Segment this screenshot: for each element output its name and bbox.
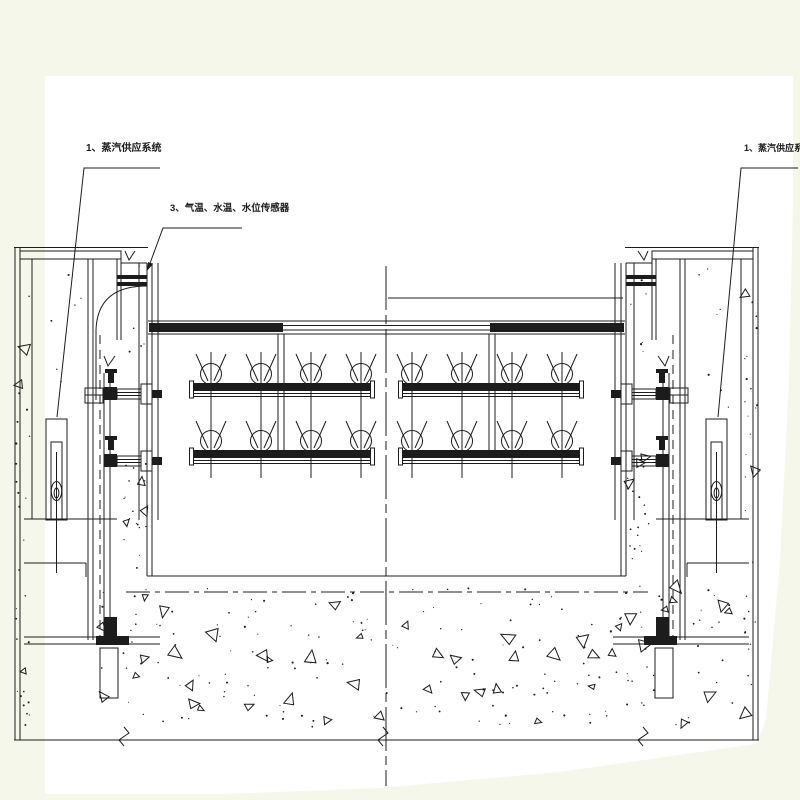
label-steam-supply-left: 1、蒸汽供应系统: [86, 141, 162, 154]
drawing-sheet: [45, 76, 793, 794]
elevation-drawing: 1、蒸汽供应系统 3、气温、水温、水位传感器 1、蒸汽供应系统: [0, 0, 800, 800]
label-sensors: 3、气温、水温、水位传感器: [170, 202, 290, 214]
label-steam-supply-right: 1、蒸汽供应系统: [744, 142, 800, 153]
